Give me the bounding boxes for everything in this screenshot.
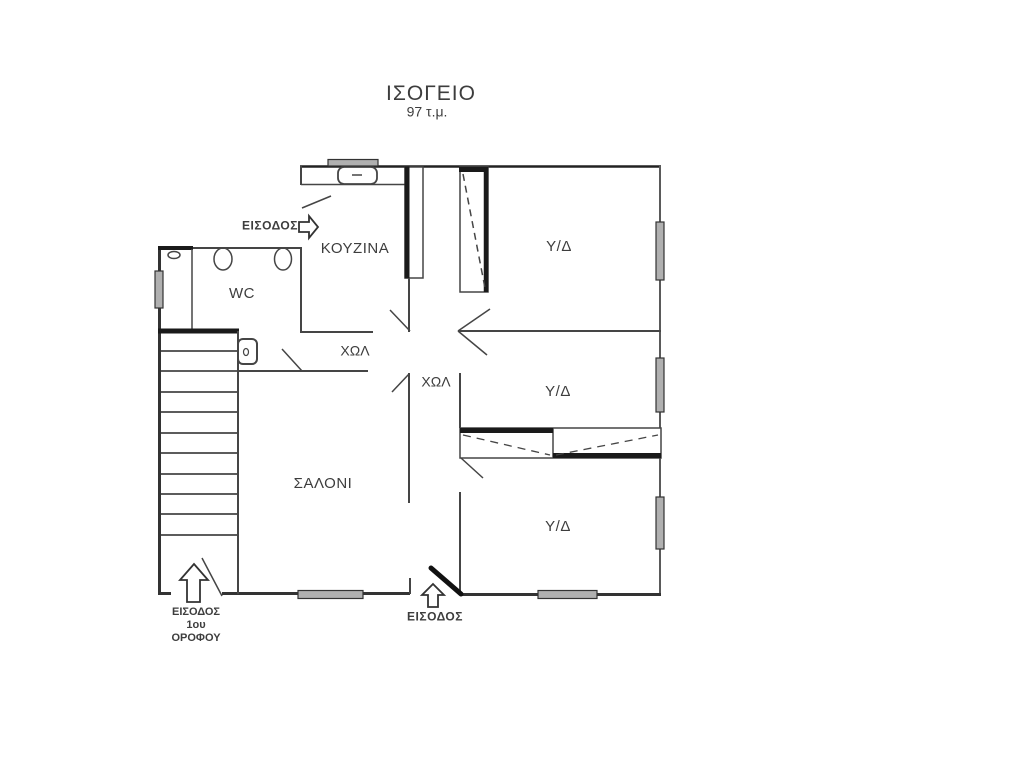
window-kitchen-top <box>328 160 378 167</box>
door-bedroom2 <box>458 331 487 355</box>
door-kitchen-entrance <box>302 196 331 208</box>
wc-fixture-2 <box>275 248 292 270</box>
door-bedroom1 <box>458 309 490 331</box>
door-bedroom3 <box>461 458 483 478</box>
window-wc-left <box>155 271 163 308</box>
room-label-bedroom2: Υ/Δ <box>545 384 571 400</box>
floorplan-drawing <box>0 0 1024 768</box>
entrance-top-label: ΕΙΣΟΔΟΣ <box>242 220 298 233</box>
room-label-bedroom3: Υ/Δ <box>545 519 571 535</box>
room-label-living: ΣΑΛΟΝΙ <box>294 476 353 492</box>
window-bedroom2-right <box>656 358 664 412</box>
floorplan-page: ΙΣΟΓΕΙΟ 97 τ.μ. ΕΙΣΟΔΟΣ ΚΟΥΖΙΝΑ WC ΧΩΛ Χ… <box>0 0 1024 768</box>
window-bedroom3-bottom <box>538 591 597 599</box>
door-kitchen-hall <box>390 310 410 331</box>
shower-drain <box>168 252 180 259</box>
room-label-wc: WC <box>229 286 255 302</box>
stairs <box>161 331 238 596</box>
sliding-closet <box>460 428 661 458</box>
door-wc <box>282 349 302 371</box>
stairs-entrance-label-line2: 1ου <box>186 620 205 632</box>
window-bedroom3-right <box>656 497 664 549</box>
wc-fixture-1 <box>214 248 232 270</box>
entrance-bottom-arrow-icon <box>422 584 444 607</box>
entrance-top-arrow-icon <box>299 216 318 238</box>
stairs-entrance-label-line1: ΕΙΣΟΔΟΣ <box>172 607 220 619</box>
stairs-up-arrow-icon <box>180 564 208 602</box>
page-title: ΙΣΟΓΕΙΟ <box>386 83 476 105</box>
wc-block <box>158 248 302 371</box>
wall-column-thick-edge <box>405 167 410 279</box>
wc-cistern <box>238 339 257 364</box>
room-label-kitchen: ΚΟΥΖΙΝΑ <box>321 241 389 257</box>
page-area: 97 τ.μ. <box>407 105 448 120</box>
window-bedroom1-right <box>656 222 664 280</box>
bedroom1-wardrobe <box>459 167 488 292</box>
room-label-hall1: ΧΩΛ <box>340 344 369 359</box>
room-label-bedroom1: Υ/Δ <box>546 239 572 255</box>
stairs-entrance-label-line3: ΟΡΟΦΟΥ <box>171 633 220 645</box>
entrance-bottom-label: ΕΙΣΟΔΟΣ <box>407 611 463 624</box>
room-label-hall2: ΧΩΛ <box>421 375 450 390</box>
window-living-bottom <box>298 591 363 599</box>
door-living <box>392 374 409 392</box>
